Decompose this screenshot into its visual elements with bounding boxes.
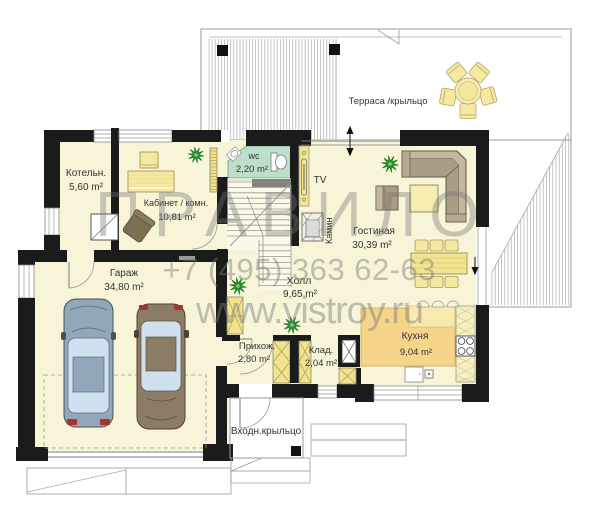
- svg-text:Входн.крыльцо: Входн.крыльцо: [231, 426, 302, 437]
- svg-text:2,04 m²: 2,04 m²: [305, 358, 337, 369]
- svg-text:2,80 m²: 2,80 m²: [238, 354, 270, 365]
- svg-text:Кухня: Кухня: [402, 331, 429, 342]
- svg-text:www.vistroy.ru: www.vistroy.ru: [195, 290, 424, 332]
- svg-text:wc: wc: [248, 151, 260, 161]
- svg-text:Клад.: Клад.: [309, 345, 334, 356]
- svg-text:Гараж: Гараж: [110, 268, 139, 279]
- svg-text:+7 (495) 363 62-63: +7 (495) 363 62-63: [163, 252, 436, 287]
- svg-text:2,20 m²: 2,20 m²: [236, 164, 268, 175]
- svg-text:Терраса /крыльцо: Терраса /крыльцо: [348, 96, 427, 107]
- svg-text:34,80 m²: 34,80 m²: [104, 282, 144, 293]
- svg-text:9,04 m²: 9,04 m²: [400, 347, 432, 358]
- svg-text:Прихож.: Прихож.: [239, 341, 275, 352]
